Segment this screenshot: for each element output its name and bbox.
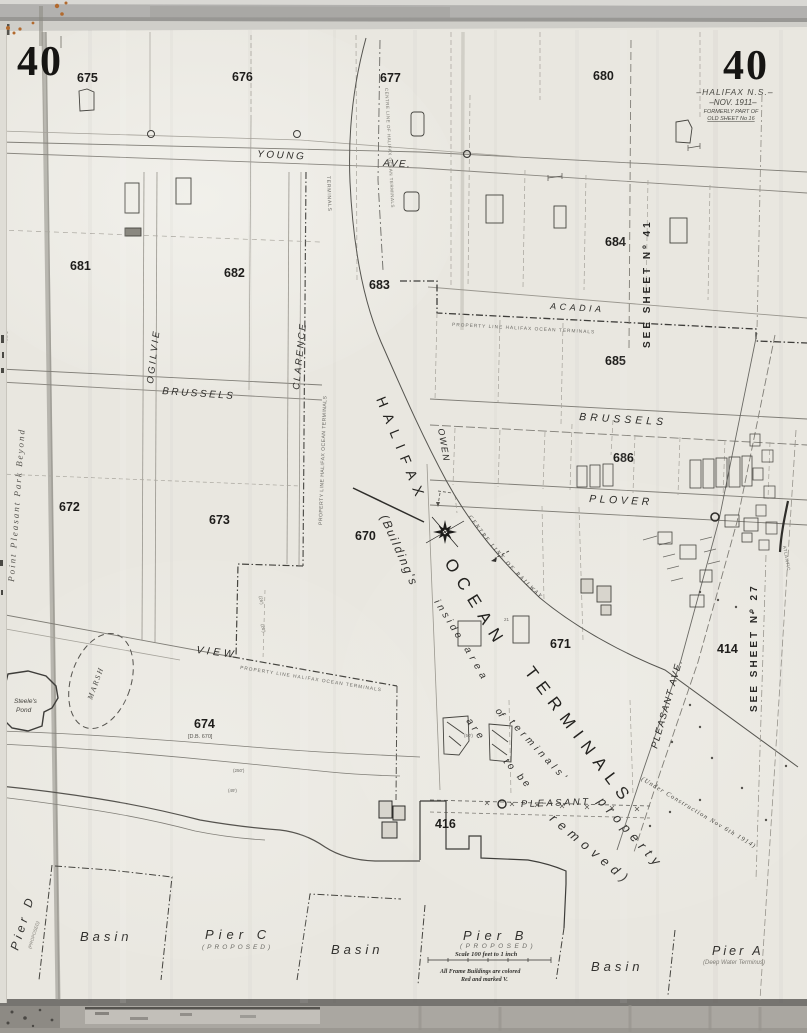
svg-text:TERMINALS: TERMINALS (325, 176, 332, 212)
svg-text:414: 414 (717, 642, 738, 656)
svg-text:683: 683 (369, 278, 390, 292)
svg-text:SEE SHEET Nº 27: SEE SHEET Nº 27 (749, 583, 760, 712)
svg-text:Pier A: Pier A (712, 944, 764, 958)
svg-text:SEE SHEET Nº 41: SEE SHEET Nº 41 (642, 219, 653, 348)
svg-text:416: 416 (435, 817, 456, 831)
svg-text:677: 677 (380, 71, 401, 85)
svg-text:(PROPOSED): (PROPOSED) (202, 944, 273, 951)
svg-text:(PROPOSED): (PROPOSED) (460, 943, 536, 950)
svg-text:(50'): (50') (464, 733, 473, 738)
svg-text:Pond: Pond (16, 707, 32, 714)
svg-text:680: 680 (593, 69, 614, 83)
svg-text:40: 40 (723, 43, 769, 89)
svg-text:AVE.: AVE. (382, 158, 412, 171)
svg-text:675: 675 (77, 71, 98, 85)
svg-text:670: 670 (355, 529, 376, 543)
svg-text:–HALIFAX N.S.–: –HALIFAX N.S.– (695, 87, 773, 97)
svg-text:All Frame Buildings are colore: All Frame Buildings are colored (439, 969, 521, 975)
svg-text:[D.B. 670]: [D.B. 670] (188, 734, 213, 740)
svg-text:Steele's: Steele's (14, 698, 38, 705)
svg-text:21: 21 (504, 617, 510, 622)
svg-text:Scale 100 feet to 1 inch: Scale 100 feet to 1 inch (455, 951, 518, 958)
svg-text:681: 681 (70, 259, 91, 273)
svg-text:(Deep Water Terminus): (Deep Water Terminus) (703, 960, 765, 966)
svg-text:40: 40 (17, 39, 63, 85)
svg-text:672: 672 (59, 500, 80, 514)
svg-text:Red and marked V.: Red and marked V. (460, 977, 508, 983)
svg-text:Basin: Basin (591, 959, 644, 974)
svg-text:674: 674 (194, 717, 215, 731)
svg-text:(49'): (49') (228, 788, 237, 793)
svg-text:(250'): (250') (233, 768, 245, 773)
svg-text:Pier C: Pier C (205, 927, 271, 942)
svg-text:673: 673 (209, 513, 230, 527)
svg-text:671: 671 (550, 637, 571, 651)
svg-text:FORMERLY PART OF: FORMERLY PART OF (704, 109, 759, 115)
svg-text:682: 682 (224, 266, 245, 280)
svg-text:Basin: Basin (331, 942, 384, 957)
